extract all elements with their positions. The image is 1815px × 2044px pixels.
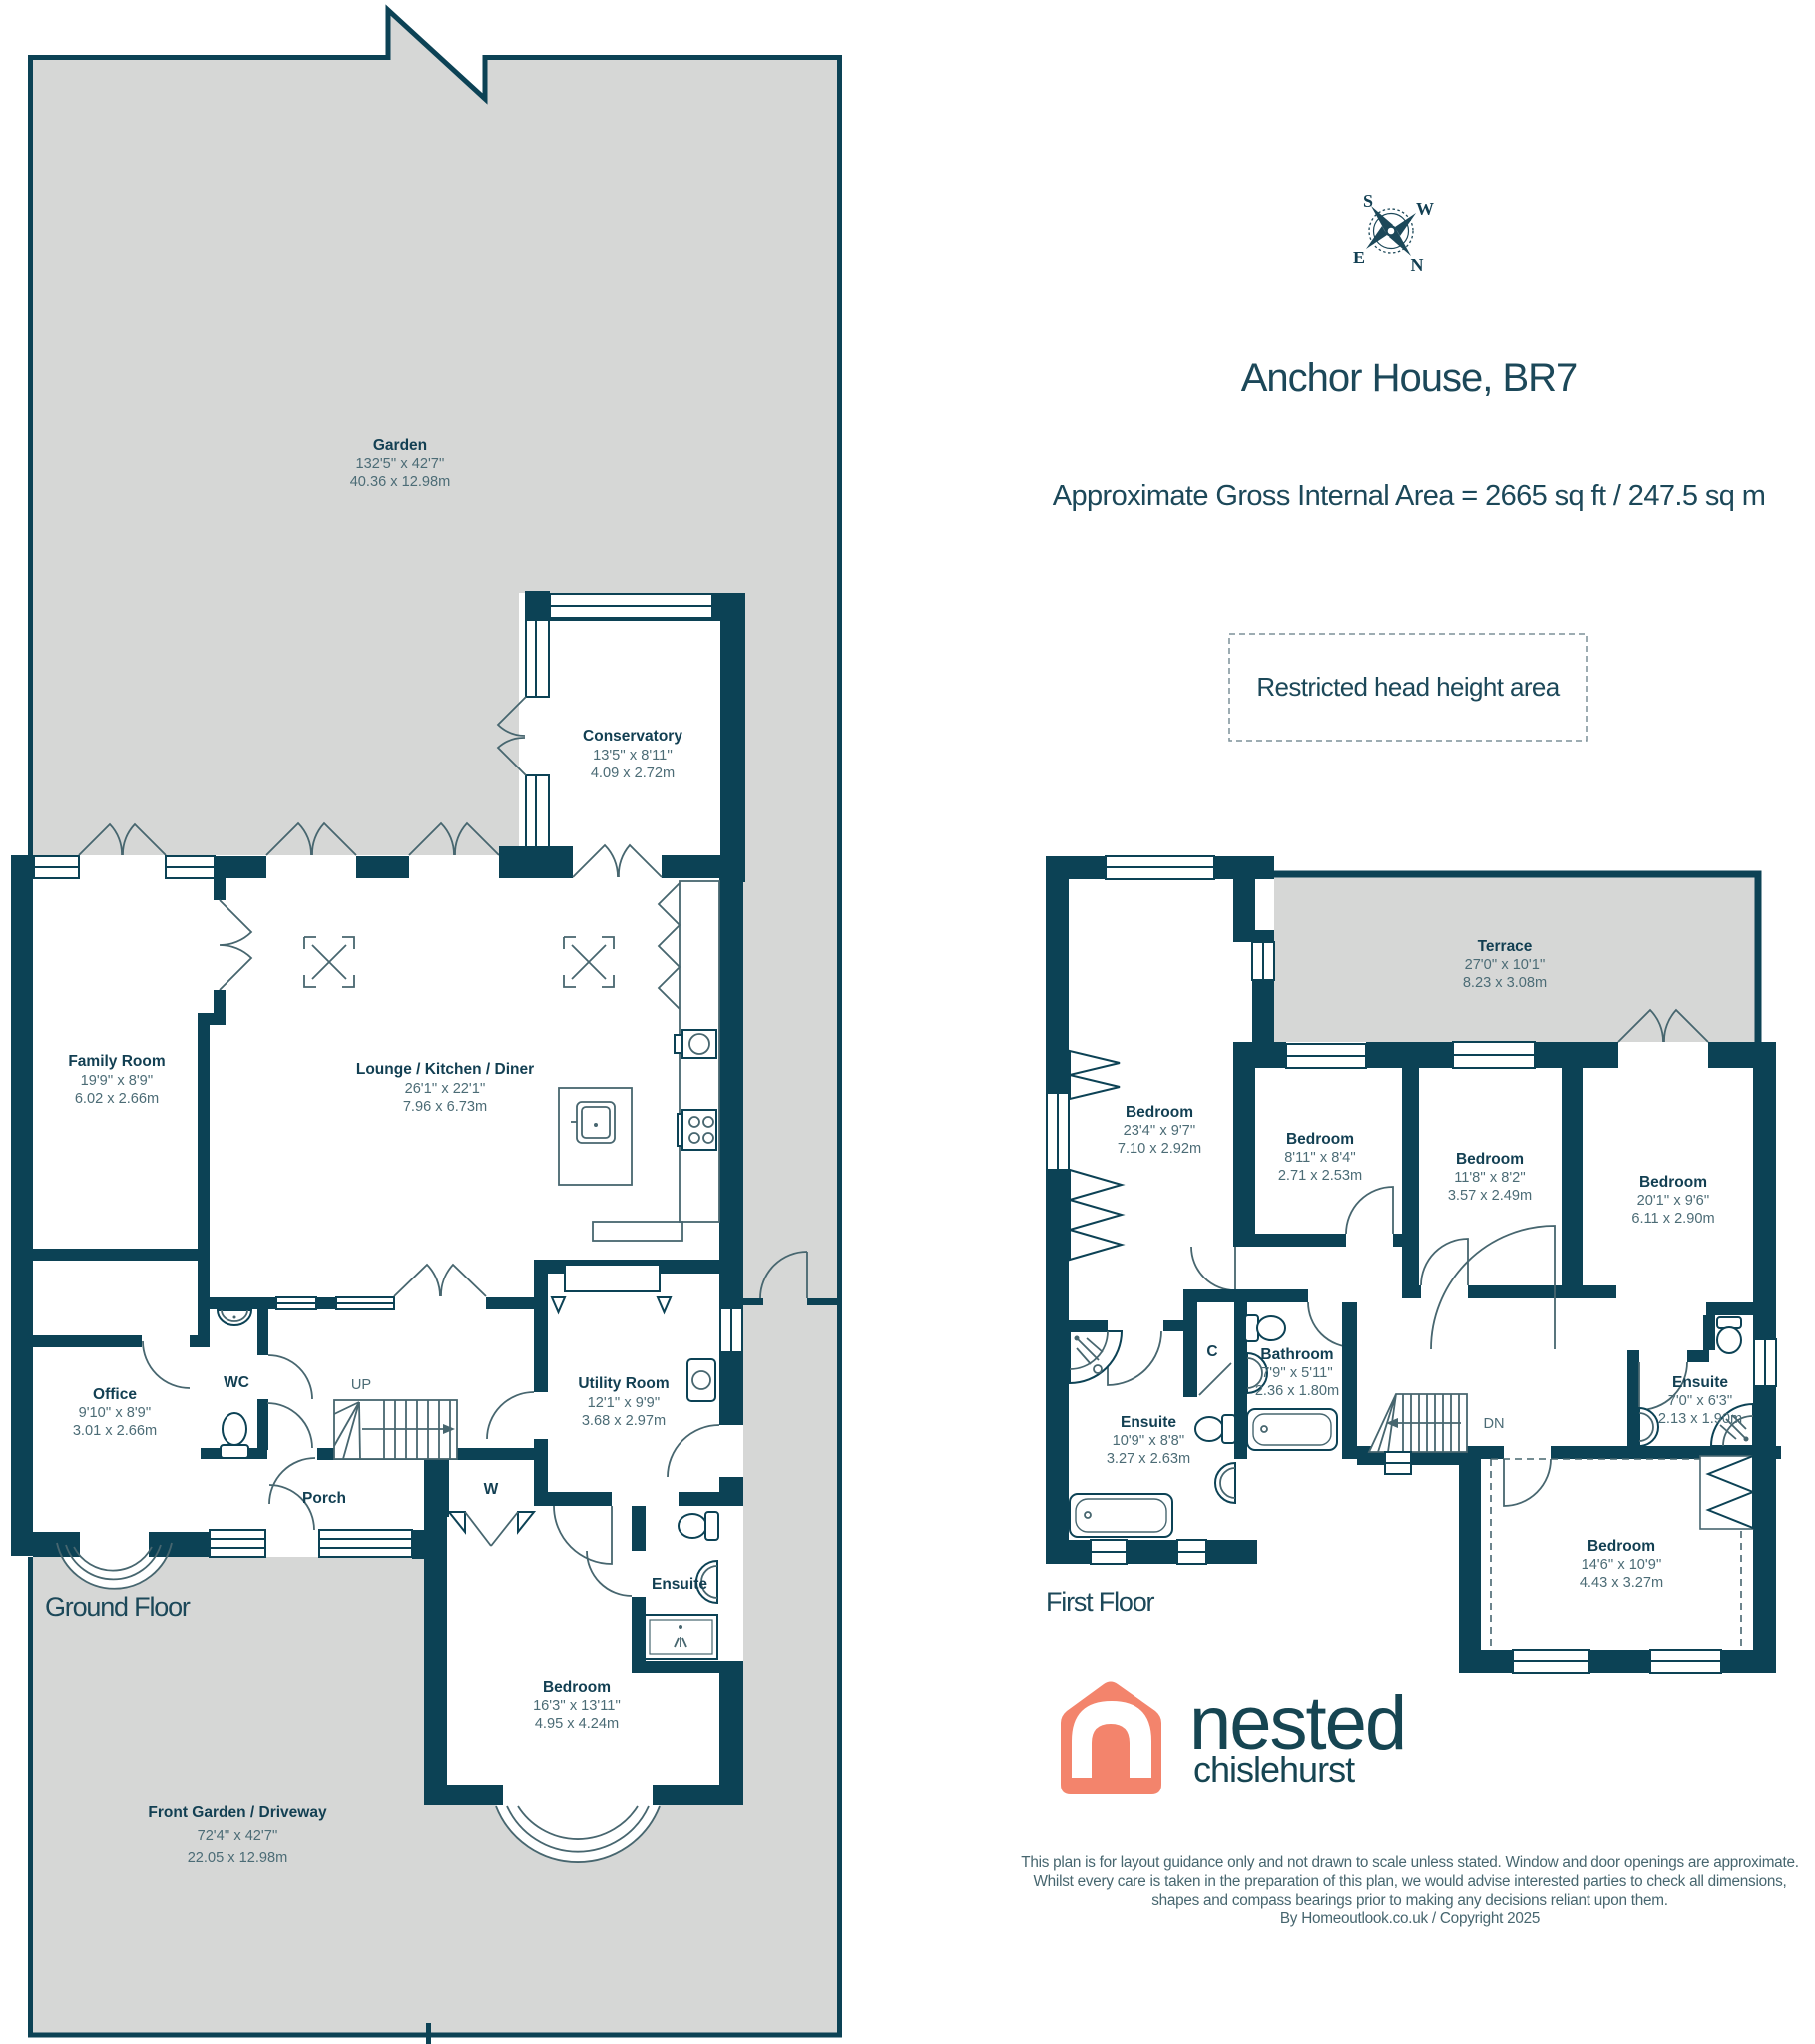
svg-text:Front Garden / Driveway: Front Garden / Driveway [148, 1804, 327, 1821]
svg-text:12'1'' x 9'9'': 12'1'' x 9'9'' [588, 1395, 661, 1411]
svg-text:Office: Office [93, 1386, 137, 1403]
svg-text:Ground Floor: Ground Floor [45, 1592, 191, 1622]
svg-text:26'1'' x 22'1'': 26'1'' x 22'1'' [405, 1081, 486, 1097]
svg-text:3.01 x 2.66m: 3.01 x 2.66m [73, 1423, 157, 1439]
svg-text:WC: WC [224, 1374, 249, 1391]
svg-text:Restricted head height area: Restricted head height area [1256, 672, 1560, 702]
svg-text:11'8'' x 8'2'': 11'8'' x 8'2'' [1454, 1170, 1526, 1186]
svg-text:By Homeoutlook.co.uk / Copyrig: By Homeoutlook.co.uk / Copyright 2025 [1280, 1910, 1540, 1927]
svg-text:4.43 x 3.27m: 4.43 x 3.27m [1580, 1575, 1663, 1591]
svg-text:Bedroom: Bedroom [1639, 1174, 1707, 1191]
svg-text:20'1'' x 9'6'': 20'1'' x 9'6'' [1637, 1193, 1710, 1209]
svg-text:2.36 x 1.80m: 2.36 x 1.80m [1255, 1383, 1339, 1399]
svg-text:4.09 x 2.72m: 4.09 x 2.72m [591, 766, 675, 781]
svg-text:shapes and compass bearings pr: shapes and compass bearings prior to mak… [1151, 1892, 1668, 1909]
svg-text:Bedroom: Bedroom [1456, 1151, 1524, 1168]
svg-text:19'9'' x 8'9'': 19'9'' x 8'9'' [81, 1073, 154, 1089]
svg-text:9'10'' x 8'9'': 9'10'' x 8'9'' [79, 1405, 152, 1421]
svg-text:27'0'' x 10'1'': 27'0'' x 10'1'' [1465, 957, 1546, 973]
svg-text:7'9'' x 5'11'': 7'9'' x 5'11'' [1261, 1365, 1333, 1381]
svg-text:7.10 x 2.92m: 7.10 x 2.92m [1118, 1141, 1201, 1157]
svg-text:S: S [1363, 191, 1373, 211]
svg-text:Ensuite: Ensuite [652, 1576, 707, 1593]
svg-text:Bedroom: Bedroom [1286, 1131, 1354, 1148]
svg-text:Ensuite: Ensuite [1121, 1414, 1176, 1431]
svg-text:Anchor House, BR7: Anchor House, BR7 [1241, 356, 1578, 400]
svg-text:Bedroom: Bedroom [1588, 1538, 1655, 1555]
svg-text:E: E [1353, 248, 1365, 267]
svg-text:This plan is for layout guidan: This plan is for layout guidance only an… [1021, 1854, 1798, 1871]
svg-text:6.02 x 2.66m: 6.02 x 2.66m [75, 1091, 159, 1107]
svg-text:3.68 x 2.97m: 3.68 x 2.97m [582, 1413, 666, 1429]
svg-text:Garden: Garden [373, 437, 427, 454]
svg-text:Terrace: Terrace [1478, 938, 1533, 955]
svg-text:13'5'' x 8'11'': 13'5'' x 8'11'' [593, 748, 673, 764]
svg-text:3.57 x 2.49m: 3.57 x 2.49m [1448, 1188, 1532, 1204]
svg-text:8'11'' x 8'4'': 8'11'' x 8'4'' [1284, 1150, 1356, 1166]
svg-text:14'6'' x 10'9'': 14'6'' x 10'9'' [1582, 1557, 1662, 1573]
svg-text:10'9'' x 8'8'': 10'9'' x 8'8'' [1113, 1433, 1185, 1449]
svg-text:DN: DN [1483, 1416, 1504, 1432]
svg-text:Family Room: Family Room [68, 1053, 165, 1070]
svg-text:C: C [1206, 1343, 1217, 1360]
svg-text:W: W [1416, 199, 1434, 219]
svg-text:16'3'' x 13'11'': 16'3'' x 13'11'' [533, 1698, 621, 1714]
svg-text:N: N [1411, 255, 1424, 275]
svg-text:2.71 x 2.53m: 2.71 x 2.53m [1278, 1168, 1362, 1184]
svg-text:8.23 x 3.08m: 8.23 x 3.08m [1463, 975, 1547, 991]
svg-text:Lounge / Kitchen / Diner: Lounge / Kitchen / Diner [356, 1061, 534, 1078]
svg-text:Approximate Gross Internal Are: Approximate Gross Internal Area = 2665 s… [1053, 480, 1766, 512]
svg-text:UP: UP [351, 1377, 371, 1393]
svg-text:40.36 x 12.98m: 40.36 x 12.98m [350, 474, 451, 490]
svg-text:6.11 x 2.90m: 6.11 x 2.90m [1631, 1211, 1714, 1227]
svg-text:Ensuite: Ensuite [1672, 1374, 1728, 1391]
svg-text:7.96 x 6.73m: 7.96 x 6.73m [403, 1099, 487, 1115]
svg-text:22.05 x 12.98m: 22.05 x 12.98m [188, 1850, 288, 1866]
svg-text:chislehurst: chislehurst [1193, 1749, 1355, 1789]
svg-text:Whilst every care is taken in: Whilst every care is taken in the prepar… [1033, 1873, 1786, 1890]
svg-text:Bedroom: Bedroom [543, 1679, 611, 1696]
svg-text:23'4'' x 9'7'': 23'4'' x 9'7'' [1124, 1123, 1196, 1139]
svg-text:Utility Room: Utility Room [578, 1375, 669, 1392]
svg-text:Bedroom: Bedroom [1126, 1104, 1193, 1121]
svg-text:72'4'' x 42'7'': 72'4'' x 42'7'' [198, 1828, 278, 1844]
svg-text:3.27 x 2.63m: 3.27 x 2.63m [1107, 1451, 1190, 1467]
svg-text:4.95 x 4.24m: 4.95 x 4.24m [535, 1716, 619, 1732]
svg-text:Conservatory: Conservatory [583, 728, 682, 745]
svg-text:2.13 x 1.90m: 2.13 x 1.90m [1658, 1411, 1742, 1427]
svg-text:W: W [484, 1481, 499, 1498]
svg-text:Bathroom: Bathroom [1260, 1346, 1333, 1363]
svg-text:First Floor: First Floor [1046, 1587, 1155, 1617]
svg-text:Porch: Porch [302, 1490, 346, 1507]
svg-text:7'0'' x 6'3'': 7'0'' x 6'3'' [1668, 1393, 1733, 1409]
svg-text:132'5'' x 42'7'': 132'5'' x 42'7'' [356, 456, 445, 472]
